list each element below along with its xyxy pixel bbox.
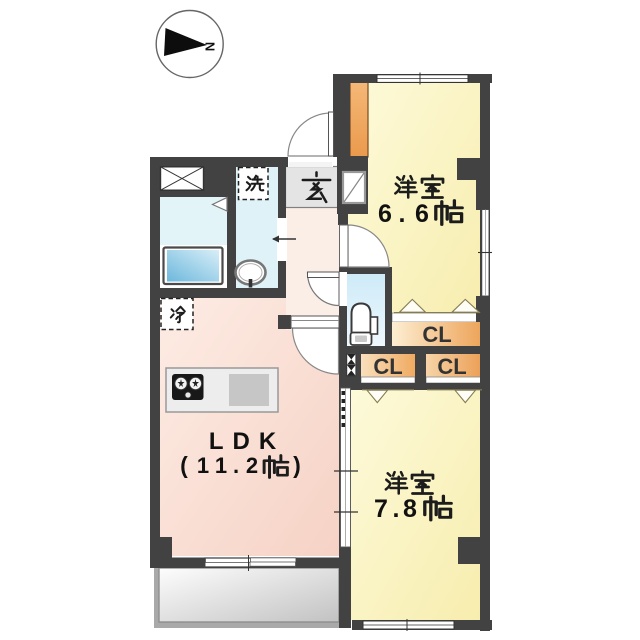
svg-text:(: ( xyxy=(180,452,188,478)
svg-text:1: 1 xyxy=(215,453,227,478)
svg-text:6: 6 xyxy=(415,200,429,228)
svg-text:1: 1 xyxy=(197,453,209,478)
svg-text:N: N xyxy=(203,42,218,51)
svg-text:.: . xyxy=(233,453,239,478)
svg-text:8: 8 xyxy=(403,495,417,523)
svg-text:CL: CL xyxy=(373,354,402,379)
svg-text:.: . xyxy=(399,200,406,228)
svg-text:LDK: LDK xyxy=(209,428,285,455)
svg-text:7: 7 xyxy=(374,495,388,523)
svg-text:.: . xyxy=(393,495,400,523)
svg-text:CL: CL xyxy=(422,322,451,347)
svg-text:2: 2 xyxy=(246,453,258,478)
svg-text:): ) xyxy=(293,452,301,478)
svg-text:CL: CL xyxy=(437,354,466,379)
svg-text:6: 6 xyxy=(378,200,392,228)
